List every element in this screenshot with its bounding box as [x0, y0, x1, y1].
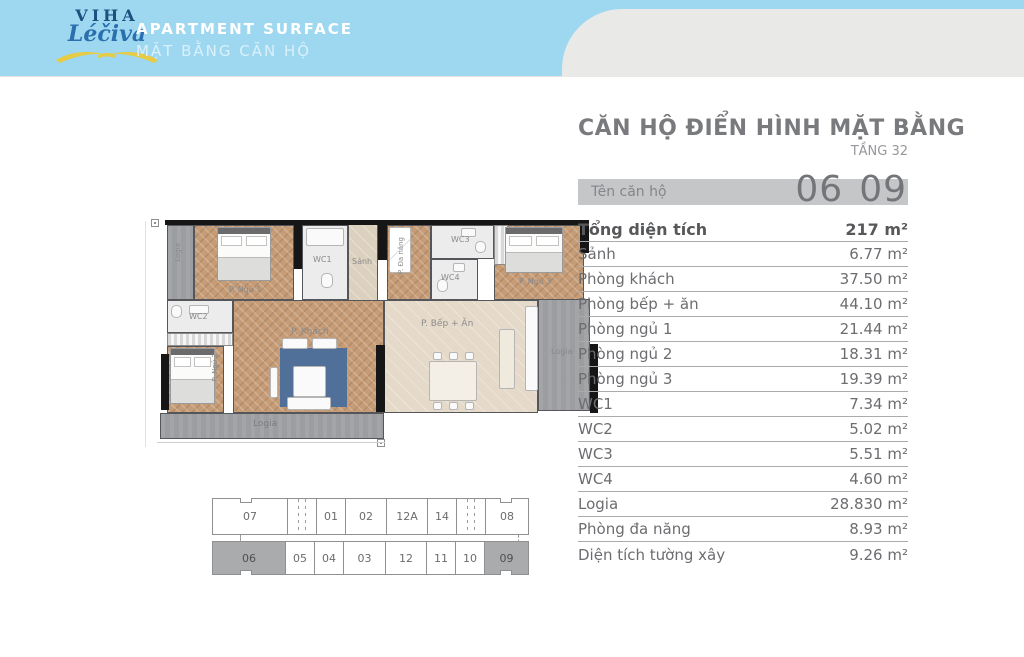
row-label: Phòng ngủ 2	[578, 345, 672, 363]
unit-name-band: Tên căn hộ 0609	[578, 179, 908, 205]
row-value: 217 m²	[845, 220, 908, 239]
row-value: 4.60 m²	[849, 470, 908, 488]
label-logia-bottom: Logia	[253, 419, 277, 429]
row-label: Logia	[578, 495, 618, 513]
dining-chair	[465, 352, 474, 360]
header-banner: VIHA Léčiva APARTMENT SURFACE MẶT BẰNG C…	[0, 0, 1024, 77]
dining-chair	[465, 402, 474, 410]
dining-chair	[449, 402, 458, 410]
kitchen-counter	[525, 306, 538, 391]
row-value: 44.10 m²	[840, 295, 908, 313]
table-row: WC44.60 m²	[578, 467, 908, 492]
keyplan-unit-12A: 12A	[386, 498, 428, 535]
unit-number-09: 09	[859, 169, 907, 210]
label-bedroom-3: P. Ngủ 3	[519, 277, 551, 286]
page-subtitle: MẶT BẰNG CĂN HỘ	[136, 42, 311, 60]
info-panel: CĂN HỘ ĐIỂN HÌNH MẶT BẰNG TẦNG 32 Tên că…	[578, 116, 908, 567]
row-label: Sảnh	[578, 245, 616, 263]
row-value: 7.34 m²	[849, 395, 908, 413]
table-row: Phòng ngủ 319.39 m²	[578, 367, 908, 392]
bed-3	[505, 227, 563, 273]
sofa	[287, 397, 331, 410]
page-title: APARTMENT SURFACE	[136, 20, 353, 38]
table-row: Phòng ngủ 121.44 m²	[578, 317, 908, 342]
keyplan-unit-04: 04	[314, 541, 344, 575]
row-value: 21.44 m²	[840, 320, 908, 338]
wall-top	[165, 220, 589, 225]
wall-column	[378, 222, 387, 260]
unit-numbers: 0609	[795, 172, 907, 208]
label-living: P. Khách	[291, 327, 329, 337]
bed-1	[217, 227, 271, 281]
tv-cabinet	[270, 367, 278, 398]
label-wc4: WC4	[441, 273, 460, 282]
row-label: WC1	[578, 395, 613, 413]
keyplan-unit-03: 03	[343, 541, 386, 575]
panel-title: CĂN HỘ ĐIỂN HÌNH MẶT BẰNG	[578, 116, 908, 141]
table-row: Tổng diện tích217 m²	[578, 217, 908, 242]
row-label: WC2	[578, 420, 613, 438]
row-value: 6.77 m²	[849, 245, 908, 263]
label-logia-top-left: Logia	[174, 243, 182, 262]
keyplan-notch	[500, 570, 512, 575]
table-row: Sảnh6.77 m²	[578, 242, 908, 267]
row-value: 28.830 m²	[830, 495, 908, 513]
row-label: Phòng ngủ 3	[578, 370, 672, 388]
row-label: WC4	[578, 470, 613, 488]
coffee-table	[293, 366, 326, 397]
label-bedroom-1: P. Ngủ 1	[229, 285, 261, 294]
row-value: 18.31 m²	[840, 345, 908, 363]
row-value: 8.93 m²	[849, 520, 908, 538]
unit-number-06: 06	[795, 169, 843, 210]
keyplan-notch	[500, 498, 512, 503]
table-row: Logia28.830 m²	[578, 492, 908, 517]
row-value: 37.50 m²	[840, 270, 908, 288]
floor-label: TẦNG 32	[578, 144, 908, 159]
row-label: Phòng bếp + ăn	[578, 295, 699, 313]
keyplan-unit-05: 05	[285, 541, 315, 575]
table-row: Phòng ngủ 218.31 m²	[578, 342, 908, 367]
plan-corner-marker	[151, 219, 159, 227]
keyplan-unit-01: 01	[316, 498, 346, 535]
label-bedroom-2: P. Ngủ 2	[211, 353, 219, 381]
keyplan-unit-10: 10	[455, 541, 485, 575]
label-wc2: WC2	[189, 312, 208, 321]
table-row: Phòng đa năng8.93 m²	[578, 517, 908, 542]
dining-chair	[449, 352, 458, 360]
toilet	[171, 305, 182, 318]
kitchen-island	[499, 329, 515, 389]
row-label: Diện tích tường xây	[578, 546, 725, 564]
sink	[453, 263, 465, 272]
dining-chair	[433, 352, 442, 360]
row-label: Phòng khách	[578, 270, 675, 288]
row-value: 19.39 m²	[840, 370, 908, 388]
row-label: Tổng diện tích	[578, 220, 707, 239]
keyplan-connector	[240, 535, 241, 542]
keyplan-notch	[240, 570, 252, 575]
plan-corner-marker	[377, 439, 385, 447]
table-row: WC25.02 m²	[578, 417, 908, 442]
keyplan-notch	[240, 498, 252, 503]
key-plan: 07 01 02 12A 14 08 06 05 04 03 12 11 10 …	[210, 492, 544, 580]
row-label: Phòng ngủ 1	[578, 320, 672, 338]
sofa	[312, 338, 337, 349]
dining-chair	[433, 402, 442, 410]
keyplan-shaft	[287, 498, 317, 535]
keyplan-unit-08: 08	[485, 498, 529, 535]
row-value: 5.02 m²	[849, 420, 908, 438]
label-wc3: WC3	[451, 235, 470, 244]
keyplan-bottom-row: 06 05 04 03 12 11 10 09	[212, 541, 529, 575]
wardrobe	[167, 333, 233, 346]
bathtub	[306, 228, 344, 246]
toilet	[321, 273, 333, 288]
row-value: 9.26 m²	[849, 546, 908, 564]
keyplan-top-row: 07 01 02 12A 14 08	[212, 498, 529, 535]
row-label: WC3	[578, 445, 613, 463]
unit-name-label: Tên căn hộ	[591, 184, 667, 200]
label-logia-right: Logia	[551, 347, 572, 356]
dining-table	[429, 361, 477, 401]
keyplan-unit-07: 07	[212, 498, 288, 535]
row-value: 5.51 m²	[849, 445, 908, 463]
label-kitchen: P. Bếp + Ăn	[421, 319, 473, 329]
label-wc1: WC1	[313, 255, 332, 264]
header-wave-shape	[562, 9, 1024, 77]
table-row: WC35.51 m²	[578, 442, 908, 467]
table-row: Phòng khách37.50 m²	[578, 267, 908, 292]
table-row: WC17.34 m²	[578, 392, 908, 417]
dimension-line	[145, 221, 146, 447]
floor-plan: Logia P. Ngủ 1 WC1 Sảnh P. Đa năng WC3 W…	[153, 211, 605, 457]
table-row: Diện tích tường xây9.26 m²	[578, 542, 908, 567]
keyplan-shaft	[456, 498, 486, 535]
label-multipurpose: P. Đa năng	[397, 237, 405, 274]
bed-2	[170, 348, 215, 404]
toilet	[475, 241, 486, 253]
wall-column	[161, 354, 169, 410]
keyplan-connector	[518, 535, 519, 542]
row-label: Phòng đa năng	[578, 520, 691, 538]
room-logia-top-left	[167, 225, 194, 300]
area-table: Tổng diện tích217 m² Sảnh6.77 m² Phòng k…	[578, 217, 908, 567]
wall-column	[376, 345, 385, 412]
keyplan-unit-12: 12	[385, 541, 427, 575]
keyplan-unit-02: 02	[345, 498, 387, 535]
keyplan-unit-14: 14	[427, 498, 457, 535]
label-hall: Sảnh	[352, 257, 372, 266]
wall-column	[294, 225, 302, 269]
keyplan-unit-11: 11	[426, 541, 456, 575]
table-row: Phòng bếp + ăn44.10 m²	[578, 292, 908, 317]
balcony-outer-line	[157, 442, 385, 443]
sofa	[282, 338, 308, 349]
